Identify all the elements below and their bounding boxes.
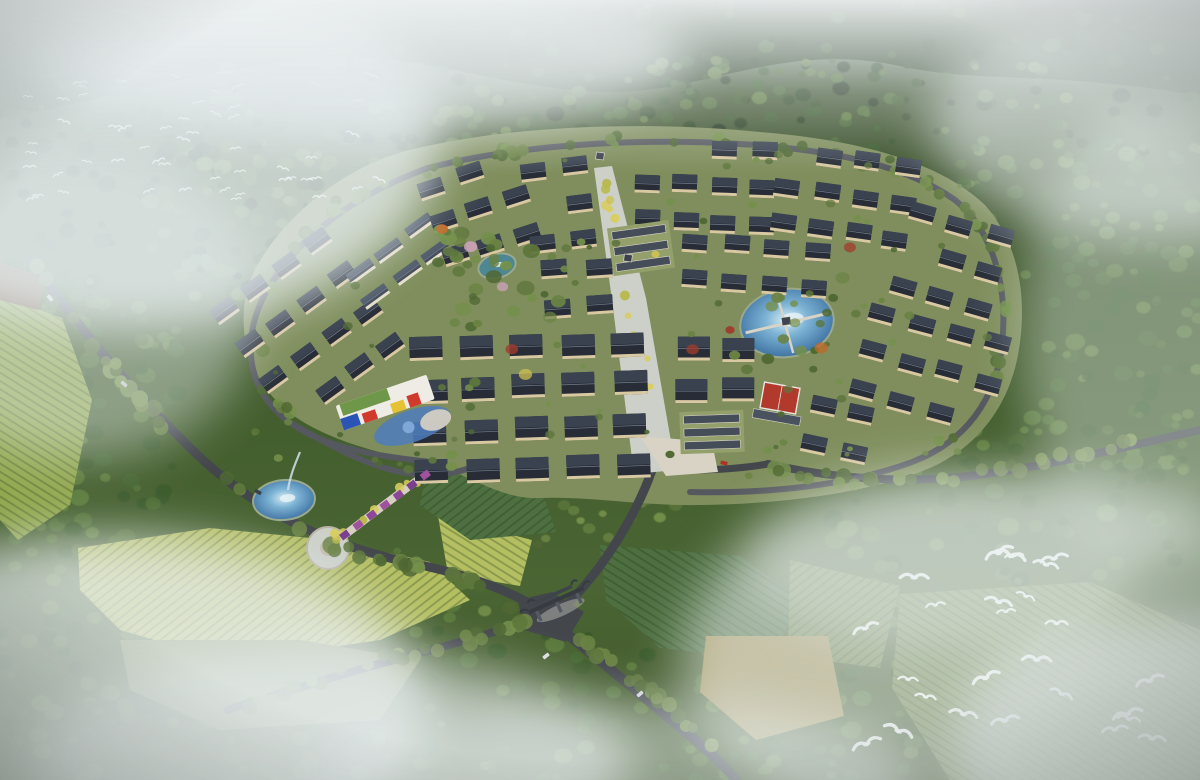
aerial-rendering bbox=[0, 0, 1200, 780]
vignette bbox=[0, 0, 1200, 780]
scene-svg bbox=[0, 0, 1200, 780]
